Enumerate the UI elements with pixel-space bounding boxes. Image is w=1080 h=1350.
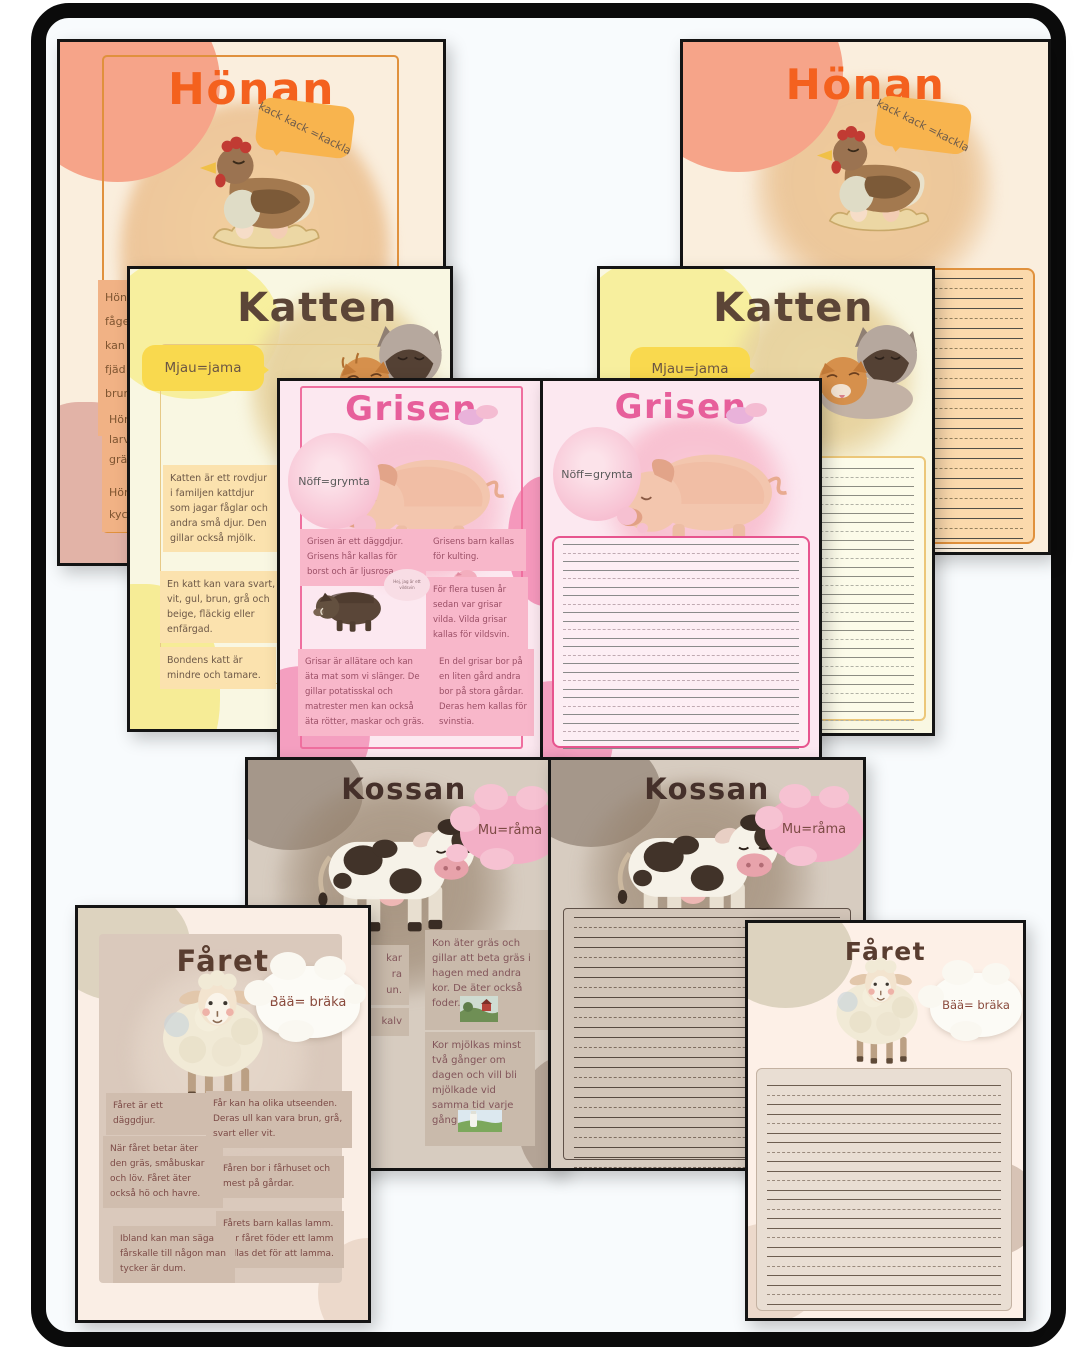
cloud-puff	[270, 952, 306, 980]
boar-speech-cloud: Hej, jag är ett vildsvin	[384, 569, 430, 601]
writing-lines	[563, 544, 799, 761]
text-block: Grisar är allätare och kan äta mat som v…	[298, 649, 432, 736]
speech-bubble-text: kack kack =kackla	[875, 96, 972, 154]
cloud-puff	[982, 963, 1010, 985]
cloud-puff	[314, 956, 346, 980]
speech-bubble-text: Mjau=jama	[165, 360, 242, 376]
text-block: För flera tusen år sedan var grisar vild…	[426, 577, 528, 649]
text-block: Får kan ha olika utseenden. Deras ull ka…	[206, 1091, 352, 1148]
speech-bubble: kack kack =kackla	[873, 94, 972, 155]
writing-area	[552, 536, 810, 748]
page-title: Hönan	[683, 60, 1048, 109]
text-block: Katten är ett rovdjur i familjen kattdju…	[163, 465, 279, 552]
speech-bubble: kack kack =kackla	[254, 96, 356, 159]
speech-cloud: Nöff=grymta	[288, 433, 380, 529]
text-block: Bondens katt är mindre och tamare.	[160, 647, 276, 689]
speech-cloud-text: Nöff=grymta	[298, 475, 370, 488]
cloud-puff	[278, 1020, 314, 1042]
cloud-puff	[344, 984, 366, 1004]
cloud-puff	[474, 784, 508, 810]
speech-cloud: Nöff=grymta	[553, 427, 641, 521]
boar-illustration	[312, 579, 390, 637]
farm-icon	[460, 996, 498, 1022]
page-faret-info: Fåret Bää= bräka Fåret är ett däggdjur. …	[75, 905, 371, 1323]
boar-speech-text: Hej, jag är ett vildsvin	[390, 579, 424, 590]
cloud-puff	[942, 960, 974, 985]
page-title: Grisen	[280, 389, 543, 429]
text-block: Ibland kan man säga fårskalle till någon…	[113, 1226, 235, 1283]
speech-cloud-text: Bää= bräka	[270, 995, 347, 1010]
speech-bubble-text: kack kack =kackla	[257, 99, 354, 157]
cloud-puff	[450, 806, 480, 832]
writing-area	[756, 1068, 1012, 1311]
cloud-puff	[446, 844, 468, 862]
page-title: Hönan	[60, 64, 443, 115]
page-title: Grisen	[543, 387, 819, 427]
cloud-puff	[637, 523, 648, 533]
speech-cloud-text: Nöff=grymta	[561, 468, 633, 481]
text-block: Fåret är ett däggdjur.	[106, 1093, 208, 1135]
speech-cloud: Bää= bräka	[256, 966, 360, 1038]
cloud-puff	[779, 784, 811, 808]
cloud-puff	[244, 980, 274, 1006]
speech-cloud-text: Bää= bräka	[942, 998, 1010, 1012]
cloud-puff	[480, 848, 514, 870]
cloud-puff	[819, 786, 849, 808]
speech-bubble-text: Mjau=jama	[652, 361, 729, 377]
text-block: En del grisar bor på en liten gård andra…	[432, 649, 534, 736]
page-faret-write: Fåret Bää= bräka	[745, 920, 1026, 1321]
cloud-puff	[516, 786, 548, 810]
speech-bubble: Mjau=jama	[142, 345, 264, 391]
speech-cloud-text: Mu=råma	[782, 822, 846, 837]
cloud-puff	[617, 507, 637, 525]
flower-decoration	[476, 405, 498, 419]
milk-icon	[458, 1110, 502, 1132]
cloud-puff	[755, 806, 783, 830]
flower-decoration	[745, 403, 767, 417]
page-grisen-info: Grisen Nöff=grymta Grisen är ett däggdju…	[277, 378, 546, 760]
cloud-puff	[785, 846, 817, 866]
text-block: Fåren bor i fårhuset och mest på gårdar.	[216, 1156, 344, 1198]
speech-cloud: Bää= bräka	[930, 973, 1022, 1037]
cloud-puff	[918, 985, 944, 1008]
cloud-puff	[950, 1021, 982, 1041]
sheep-illustration	[818, 955, 938, 1067]
text-block: Grisens barn kallas för kulting.	[426, 529, 526, 571]
speech-cloud: Mu=råma	[765, 796, 863, 862]
text-block: En katt kan vara svart, vit, gul, brun, …	[160, 571, 286, 643]
writing-lines	[767, 1085, 1001, 1313]
speech-cloud: Mu=råma	[460, 796, 560, 864]
text-block: När fåret betar äter den gräs, småbuskar…	[103, 1136, 223, 1208]
cats-illustration	[805, 311, 925, 437]
speech-cloud-text: Mu=råma	[478, 823, 542, 838]
text-block: Fårets barn kallas lamm. När fåret föder…	[216, 1211, 344, 1268]
page-grisen-write: Grisen Nöff=grymta	[540, 378, 822, 761]
